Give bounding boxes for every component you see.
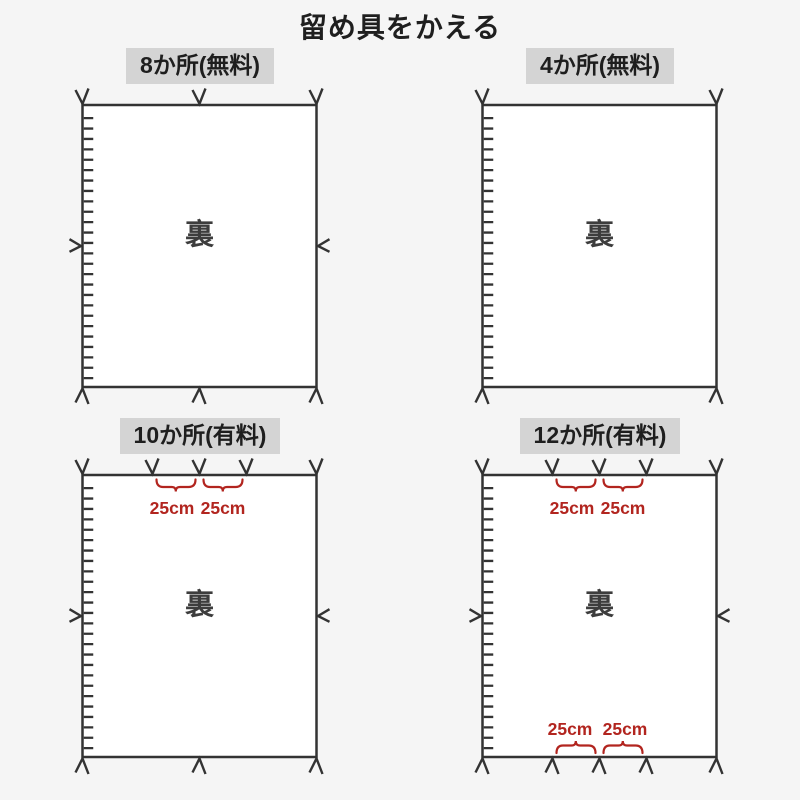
panel-8-spots: 8か所(無料) 裏 (60, 48, 340, 407)
duvet-back-diagram-4: 裏 (460, 87, 740, 407)
dimension-label: 25cm (603, 719, 648, 739)
fastener-mark-icon (718, 609, 730, 622)
dimension-label: 25cm (550, 498, 595, 518)
dimension-label: 25cm (601, 498, 646, 518)
fastener-mark-icon (640, 758, 653, 774)
fastener-mark-icon (546, 458, 559, 473)
fastener-mark-icon (640, 458, 653, 473)
panel-10-spots-label: 10か所(有料) (120, 418, 281, 454)
panel-10-spots: 10か所(有料) 25cm 25cm 裏 (60, 418, 340, 777)
dimension-label: 25cm (548, 719, 593, 739)
panel-8-spots-label: 8か所(無料) (126, 48, 274, 84)
fastener-mark-icon (593, 458, 606, 473)
fastener-mark-icon (70, 239, 82, 252)
fastener-mark-icon (76, 88, 89, 103)
duvet-back-diagram-12: 25cm 25cm 25cm 25cm 裏 (460, 457, 740, 777)
back-side-label: 裏 (185, 217, 215, 251)
fastener-mark-icon (76, 388, 89, 404)
panel-12-spots: 12か所(有料) 25cm 25cm 25cm 25 (460, 418, 740, 777)
fastener-mark-icon (310, 458, 323, 473)
fastener-mark-icon (476, 388, 489, 404)
fastener-mark-icon (318, 239, 330, 252)
fastener-mark-icon (76, 458, 89, 473)
fastener-mark-icon (710, 388, 723, 404)
fastener-mark-icon (318, 609, 330, 622)
dimension-label: 25cm (201, 498, 246, 518)
fastener-mark-icon (193, 458, 206, 473)
dimension-label: 25cm (150, 498, 195, 518)
page-title: 留め具をかえる (0, 6, 800, 46)
duvet-back-diagram-10: 25cm 25cm 裏 (60, 457, 340, 777)
fastener-mark-icon (76, 758, 89, 774)
panel-12-spots-label: 12か所(有料) (520, 418, 681, 454)
fastener-mark-icon (710, 458, 723, 473)
fastener-mark-icon (193, 758, 206, 774)
fastener-mark-icon (710, 88, 723, 103)
fastener-mark-icon (310, 388, 323, 404)
duvet-back-diagram-8: 裏 (60, 87, 340, 407)
fastener-mark-icon (146, 458, 159, 473)
fastener-mark-icon (310, 88, 323, 103)
back-side-label: 裏 (185, 587, 215, 621)
fastener-mark-icon (193, 388, 206, 404)
back-side-label: 裏 (585, 587, 615, 621)
fastener-mark-icon (240, 458, 253, 473)
fastener-mark-icon (470, 609, 482, 622)
fastener-mark-icon (593, 758, 606, 774)
back-side-label: 裏 (585, 217, 615, 251)
fastener-mark-icon (476, 758, 489, 774)
fastener-mark-icon (310, 758, 323, 774)
panel-4-spots: 4か所(無料) 裏 (460, 48, 740, 407)
fastener-mark-icon (476, 88, 489, 103)
fastener-mark-icon (476, 458, 489, 473)
fastener-mark-icon (710, 758, 723, 774)
fastener-mark-icon (70, 609, 82, 622)
panel-4-spots-label: 4か所(無料) (526, 48, 674, 84)
fastener-mark-icon (193, 88, 206, 103)
fastener-mark-icon (546, 758, 559, 774)
